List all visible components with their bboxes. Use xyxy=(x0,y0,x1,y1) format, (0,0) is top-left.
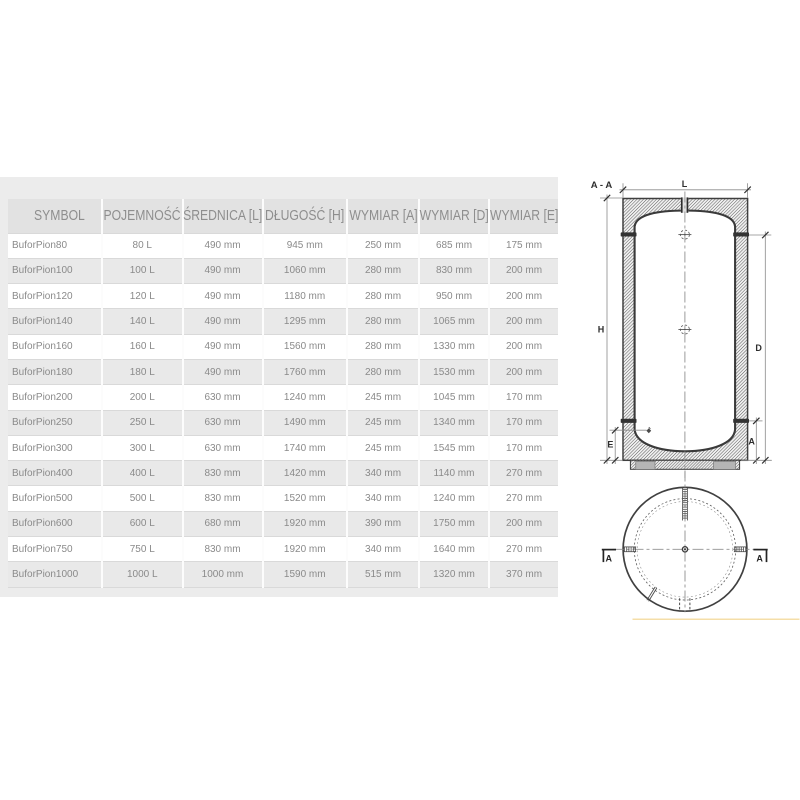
svg-text:E: E xyxy=(607,440,613,450)
svg-text:D: D xyxy=(755,343,762,353)
svg-text:A: A xyxy=(756,553,763,563)
svg-text:A - A: A - A xyxy=(591,180,613,191)
svg-text:H: H xyxy=(598,325,605,335)
svg-text:A: A xyxy=(605,553,612,563)
svg-text:L: L xyxy=(682,179,688,189)
svg-text:A: A xyxy=(748,436,755,446)
